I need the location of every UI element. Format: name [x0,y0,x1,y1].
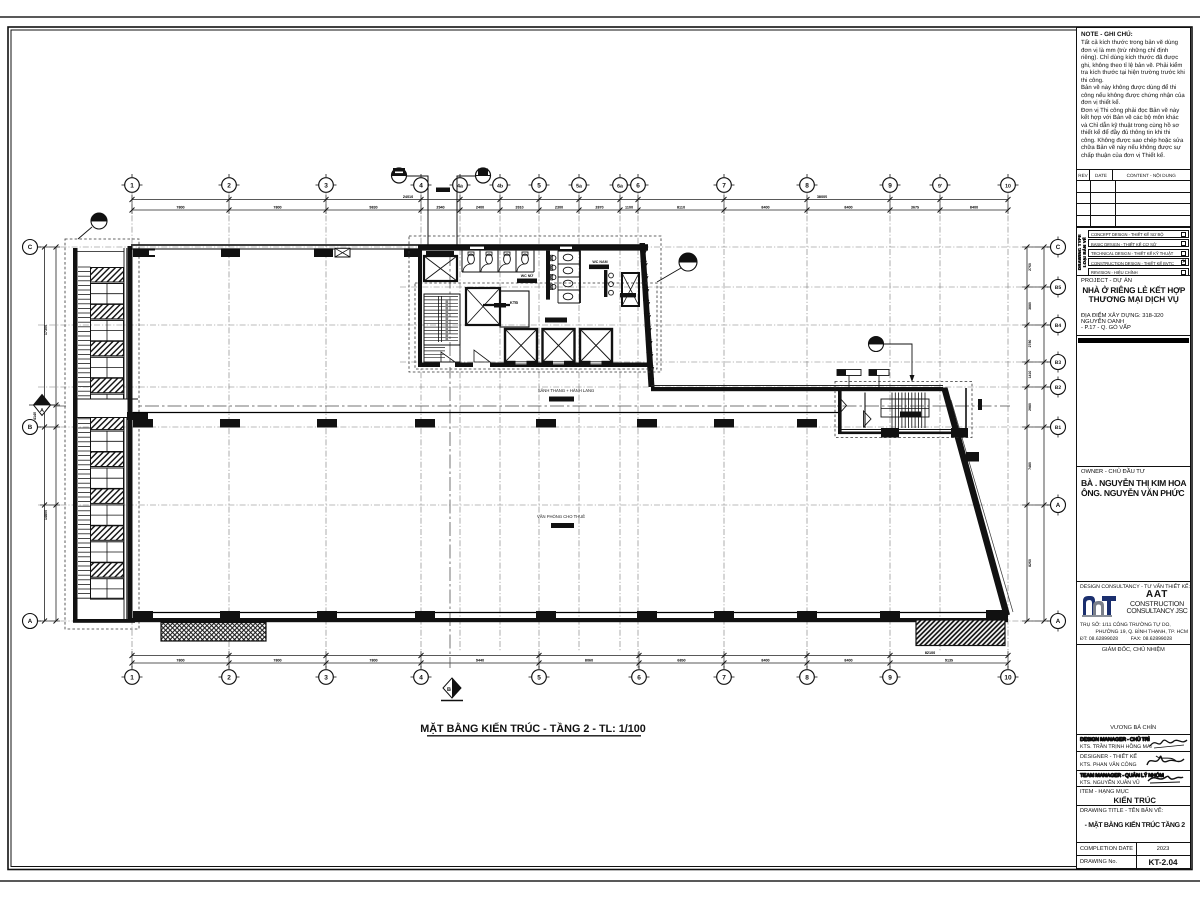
svg-text:2400: 2400 [476,206,484,210]
svg-text:2940: 2940 [436,206,444,210]
svg-text:8400: 8400 [844,659,852,663]
svg-text:B: B [447,687,451,693]
svg-text:4a: 4a [457,183,463,189]
svg-text:1410: 1410 [1028,371,1032,379]
svg-text:2870: 2870 [595,206,603,210]
svg-text:9830: 9830 [369,206,377,210]
svg-text:A: A [1056,618,1061,625]
svg-text:2780: 2780 [1028,340,1032,348]
svg-text:VĂN PHÒNG CHO THUÊ: VĂN PHÒNG CHO THUÊ [537,514,585,519]
svg-text:5: 5 [537,674,541,681]
svg-text:A: A [40,408,44,414]
svg-text:9': 9' [938,183,942,189]
svg-text:A: A [28,618,33,625]
svg-text:9135: 9135 [945,659,953,663]
svg-text:B5: B5 [1055,285,1062,291]
svg-text:2: 2 [227,182,231,189]
svg-text:B: B [28,424,33,431]
svg-text:7800: 7800 [273,659,281,663]
svg-text:3: 3 [324,182,328,189]
svg-text:38005: 38005 [817,195,827,199]
svg-text:SẢNH THANG + HÀNH LANG: SẢNH THANG + HÀNH LANG [538,388,595,393]
svg-text:9: 9 [888,674,892,681]
svg-text:A: A [1056,502,1061,509]
svg-text:8: 8 [805,182,809,189]
svg-text:10: 10 [1005,183,1011,189]
svg-text:8: 8 [805,674,809,681]
svg-text:8400: 8400 [761,206,769,210]
svg-text:8250: 8250 [1028,559,1032,567]
svg-text:8400: 8400 [970,206,978,210]
svg-text:1: 1 [130,182,134,189]
svg-text:KTĐ: KTĐ [510,300,518,305]
svg-text:B2: B2 [1055,385,1062,391]
svg-text:14800: 14800 [44,510,48,520]
svg-text:5: 5 [537,182,541,189]
svg-text:4: 4 [419,674,423,681]
svg-text:9: 9 [888,182,892,189]
svg-text:B1: B1 [1055,425,1062,431]
svg-text:4: 4 [419,182,423,189]
svg-text:B4: B4 [1055,323,1062,329]
svg-text:4140: 4140 [33,412,37,420]
svg-text:7800: 7800 [176,659,184,663]
svg-text:17300: 17300 [44,325,48,335]
svg-text:7480: 7480 [1028,462,1032,470]
svg-text:7800: 7800 [176,206,184,210]
svg-text:9440: 9440 [476,659,484,663]
svg-text:3: 3 [324,674,328,681]
svg-text:WC NAM: WC NAM [592,260,607,264]
svg-text:WC NỮ: WC NỮ [521,273,534,278]
svg-text:82100: 82100 [925,651,935,655]
svg-text:3880: 3880 [1028,302,1032,310]
svg-text:2300: 2300 [555,206,563,210]
svg-text:7: 7 [722,674,726,681]
svg-text:8110: 8110 [677,206,685,210]
svg-text:8400: 8400 [761,659,769,663]
svg-text:MẶT BẰNG KIẾN TRÚC - TẦNG 2 -: MẶT BẰNG KIẾN TRÚC - TẦNG 2 - TL: 1/100 [420,722,646,735]
svg-text:5a: 5a [576,183,582,189]
svg-text:8400: 8400 [844,206,852,210]
svg-text:6a: 6a [617,183,623,189]
svg-text:C: C [28,244,33,251]
svg-text:3675: 3675 [911,206,919,210]
svg-text:6850: 6850 [677,659,685,663]
svg-text:10: 10 [1004,674,1012,681]
svg-text:1: 1 [130,674,134,681]
svg-text:7800: 7800 [273,206,281,210]
svg-text:B3: B3 [1055,360,1062,366]
svg-text:4b: 4b [497,183,503,189]
svg-text:7: 7 [722,182,726,189]
svg-text:2750: 2750 [1028,263,1032,271]
svg-text:6: 6 [637,674,641,681]
svg-text:1100: 1100 [625,206,633,210]
svg-text:2: 2 [227,674,231,681]
svg-text:7800: 7800 [369,659,377,663]
svg-text:24010: 24010 [403,195,413,199]
svg-text:2980: 2980 [1028,403,1032,411]
svg-text:6: 6 [636,182,640,189]
svg-text:8060: 8060 [585,659,593,663]
svg-text:3910: 3910 [515,206,523,210]
svg-text:C: C [1056,244,1061,251]
